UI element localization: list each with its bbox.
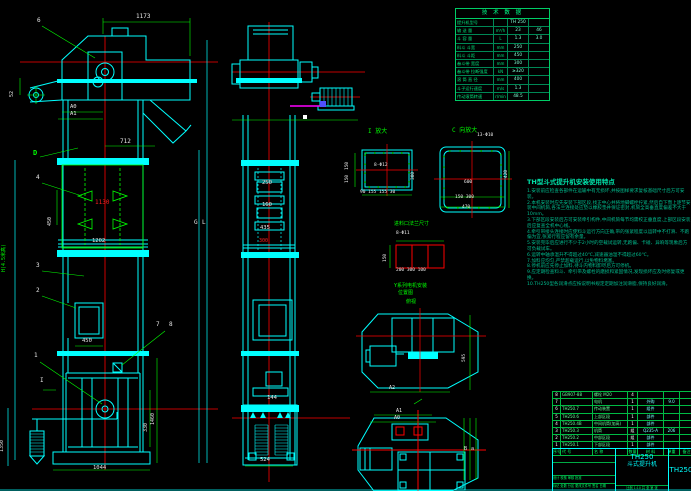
bom-item-code: TH250.7 <box>560 406 592 412</box>
tech-row-unit: mm <box>493 44 507 51</box>
tech-row-label: 斗子运行速度 <box>456 85 493 92</box>
bom-item-code: TH250.3 <box>560 428 592 434</box>
detail-I-title: I 放大 <box>368 129 387 135</box>
bom-row: 4 TH250.4B 中间机筒(加高) 1 部件 <box>553 420 691 427</box>
bom-item-name: 上部区段 <box>592 414 627 420</box>
tech-row-unit: L <box>493 35 507 42</box>
tech-row-label: 畚斗带 拉断强度 <box>456 68 493 75</box>
detail-C-title: C 向放大 <box>452 128 477 134</box>
inlet-flange-holes: 8-Φ11 <box>396 232 410 237</box>
bom-row: 5 TH250.6 上部区段 1 部件 <box>553 413 691 420</box>
bom-item-qty: 1 <box>627 421 637 427</box>
highlight-blue-block <box>320 101 326 107</box>
detail-I-dim-150b: 150 <box>346 175 351 183</box>
technical-data-row: 料斗 斗距 mm 450 <box>456 51 549 59</box>
bom-rows: 8 GB907-88 螺栓 M20 4 7 电机 1 外购 9.0 6 TH25… <box>553 392 691 449</box>
bom-item-material <box>637 392 663 398</box>
bom-item-weight: 206 <box>663 428 679 434</box>
bom-item-code <box>560 399 592 405</box>
head-side-top-box <box>248 26 293 60</box>
detail-I-holes: 8-Φ12 <box>374 164 388 169</box>
bom-item-qty: 组 <box>627 428 637 434</box>
drawing-model: TH250 <box>631 453 654 461</box>
bom-item-name: 中间机筒(加高) <box>592 421 627 427</box>
boot-platform <box>253 372 288 396</box>
technical-data-row: 提升机型号 TH 250 <box>456 19 549 26</box>
plan2-dim-A1: A1 <box>396 409 402 414</box>
plan-view-title: 俯视 <box>406 300 416 305</box>
tech-row-label: 输 送 量 <box>456 27 493 34</box>
selection-grip <box>303 115 307 119</box>
dim-arm-height: 52 <box>10 91 15 97</box>
tech-row-unit <box>493 19 507 26</box>
tech-row-label: 提升机型号 <box>456 19 493 26</box>
discharge-chute <box>143 100 191 143</box>
title-block-scale-row: 比例 1:10 共 张 第 张 <box>616 485 668 491</box>
bom-item-weight: 9.0 <box>663 399 679 405</box>
note-line: 2.本机安装时应先安装下部区段,找正中心并将地脚螺栓拧紧,然后自下而上逐节安装中… <box>527 201 691 218</box>
tech-row-unit: mm <box>493 60 507 67</box>
bom-item-qty: 组 <box>627 435 637 441</box>
tech-row-value-1: 23 <box>507 27 528 34</box>
notes-title: TH型斗式提升机安装使用特点 <box>527 176 691 186</box>
bom-item-material: 组件 <box>637 406 663 412</box>
technical-data-row: 畚斗带 拉断强度 kN ≥320 <box>456 67 549 75</box>
tech-row-value-1: TH 250 <box>507 19 528 26</box>
tech-row-unit: mm <box>493 52 507 59</box>
tech-row-value-2 <box>528 85 549 92</box>
flange-band-2 <box>57 250 149 257</box>
technical-data-row: 斗 容 量 L 1.3 3.0 <box>456 34 549 42</box>
dim-boot-1460: 1460 <box>151 413 156 425</box>
dim-boot-330: 330 <box>144 423 149 432</box>
tech-row-unit: kN <box>493 68 507 75</box>
dim-side-250: 250 <box>262 181 272 187</box>
plan2-dim-B: B <box>464 447 467 452</box>
tech-row-value-2 <box>528 44 549 51</box>
flange-band-1 <box>57 158 149 165</box>
backstop-arm <box>30 80 62 102</box>
title-block-signatures: 设计 校核 审核 批准 标记 处数 分区 更改文件号 签名 日期 <box>553 449 616 491</box>
part-label-7: 7 <box>156 322 160 328</box>
plan-view-lower <box>352 399 486 491</box>
bom-item-material: 部件 <box>637 414 663 420</box>
bom-row: 2 TH250.2 中部区段 组 部件 <box>553 434 691 441</box>
bom-item-note <box>679 414 691 420</box>
dim-mid-1130: 1130 <box>95 200 109 206</box>
inspection-door <box>113 363 122 372</box>
note-line: 10.TH250型各润滑点应按说明书规定定期加注润滑脂,保持良好润滑。 <box>527 282 691 288</box>
dim-inlet-450: 450 <box>82 339 92 345</box>
tech-row-value-1: 1.3 <box>507 35 528 42</box>
bom-item-no: 6 <box>553 406 560 412</box>
dim-label-L: L <box>202 220 206 226</box>
middle-view-cyan-linework <box>232 26 354 465</box>
technical-data-row: 输 送 量 m³/h 23 46 <box>456 26 549 34</box>
technical-data-title: 技 术 数 据 <box>456 9 549 19</box>
title-block-roles: 设计 校核 审核 批准 <box>553 476 615 484</box>
tech-row-value-2 <box>528 19 549 26</box>
mid-section <box>62 165 143 248</box>
drawing-product-name: 斗式提升机 <box>627 461 657 469</box>
part-label-1: 1 <box>34 353 38 359</box>
tech-row-label: 斗 容 量 <box>456 35 493 42</box>
part-label-8: 8 <box>169 322 173 328</box>
tech-row-value-1: 450 <box>507 52 528 59</box>
inlet-flange-dims-bottom: 200 300 100 <box>396 269 426 274</box>
dim-bucket-pitch: 450 <box>48 217 53 226</box>
dim-base-1044: 1044 <box>93 466 106 472</box>
tech-row-value-2 <box>528 76 549 83</box>
bom-item-name: 机筒 <box>592 428 627 434</box>
dim-A0: A0 <box>70 105 77 111</box>
note-line: 1.安装前应检查各部件在运输中有无损坏,并按图样要求复核基础尺寸后方可安装。 <box>527 189 691 201</box>
technical-data-row: 传动滚筒转速 r/min 48.5 <box>456 92 549 100</box>
motor-layout-title-1: Y系列电机安装 <box>394 284 427 289</box>
dim-top-width: 1173 <box>136 14 150 20</box>
tech-row-label: 传动滚筒转速 <box>456 93 493 100</box>
tech-row-value-2 <box>528 52 549 59</box>
tech-row-unit: r/min <box>493 93 507 100</box>
dim-side-300: 300 <box>259 239 268 244</box>
bom-item-name: 电机 <box>592 399 627 405</box>
head-side-body <box>232 60 298 88</box>
note-line: 5.安装完毕后应进行不少于2小时的空载试运转,无跑偏、卡碰、异响等现象后方可负载… <box>527 241 691 253</box>
dim-head-offset: 712 <box>120 139 131 145</box>
dim-side-144: 144 <box>267 396 277 402</box>
tech-row-value-2 <box>528 68 549 75</box>
plan2-dim-A0: A0 <box>394 416 400 421</box>
tech-row-value-2 <box>528 60 549 67</box>
bom-row: 7 电机 1 外购 9.0 <box>553 398 691 405</box>
bom-item-note <box>679 399 691 405</box>
technical-data-row: 畚斗带 宽度 mm 300 <box>456 59 549 67</box>
bom-item-no: 5 <box>553 414 560 420</box>
bom-item-note <box>679 435 691 441</box>
bom-item-material: 部件 <box>637 435 663 441</box>
tech-row-value-1: 48.5 <box>507 93 528 100</box>
detail-C-holes: 13-Φ10 <box>477 134 493 139</box>
inlet-box <box>75 303 103 338</box>
dim-side-160: 160 <box>262 203 272 209</box>
tech-row-unit: mm <box>493 76 507 83</box>
part-label-2: 2 <box>36 288 40 294</box>
part-label-4: 4 <box>36 175 40 181</box>
installation-notes: TH型斗式提升机安装使用特点 1.安装前应检查各部件在运输中有无损坏,并按图样要… <box>527 176 691 389</box>
tech-row-value-2: 46 <box>528 27 549 34</box>
part-label-3: 3 <box>36 263 40 269</box>
bom-item-note <box>679 428 691 434</box>
tech-row-value-2: 3.0 <box>528 35 549 42</box>
tech-row-label: 料斗 斗距 <box>456 52 493 59</box>
bom-item-no: 2 <box>553 435 560 441</box>
detail-C-dim-470: 470 <box>462 206 470 211</box>
bom-item-material: 外购 <box>637 399 663 405</box>
detail-I-dim-300: 300 <box>412 172 417 180</box>
title-block: 设计 校核 审核 批准 标记 处数 分区 更改文件号 签名 日期 TH250 斗… <box>552 448 691 491</box>
boot-frame <box>66 373 140 452</box>
bom-row: 6 TH250.7 传动装置 1 组件 <box>553 405 691 412</box>
bom-item-qty: 4 <box>627 392 637 398</box>
bom-row: 3 TH250.3 机筒 组 Q235-A 206 <box>553 427 691 434</box>
technical-data-table: 技 术 数 据 提升机型号 TH 250 输 送 量 m³/h 23 46 斗 … <box>455 8 550 101</box>
dim-label-G: G <box>194 220 198 226</box>
casing-walls <box>63 100 143 452</box>
tech-row-value-2 <box>528 93 549 100</box>
bom-item-weight <box>663 414 679 420</box>
tech-row-label: 滚 筒 直 径 <box>456 76 493 83</box>
bom-item-weight <box>663 392 679 398</box>
note-line: 3.下部区段安装后方可安装牵引构件,中间机筒每节均需校正垂直度,上部区段安装后应… <box>527 218 691 230</box>
motor-layout-title-2: 位置图 <box>398 291 413 296</box>
bom-item-code: TH250.4B <box>560 421 592 427</box>
detail-C-dim-600: 600 <box>464 181 472 186</box>
plan2-dim-a: a <box>471 447 474 452</box>
bom-item-name: 螺栓 M20 <box>592 392 627 398</box>
bom-item-qty: 1 <box>627 406 637 412</box>
bom-item-no: 3 <box>553 428 560 434</box>
bom-item-note <box>679 406 691 412</box>
bom-item-no: 8 <box>553 392 560 398</box>
dim-overall-height: H(4.5米高) <box>2 244 7 272</box>
bom-item-material: Q235-A <box>637 428 663 434</box>
detail-I-dims-bottom: 90 155 155 30 <box>360 191 395 196</box>
flange-band-3 <box>57 351 149 356</box>
detail-C-dim-420: 420 <box>505 170 510 178</box>
bom-item-qty: 1 <box>627 399 637 405</box>
tech-row-value-1: 400 <box>507 76 528 83</box>
bom-item-note <box>679 421 691 427</box>
drawing-number: TH250 <box>669 449 691 491</box>
note-line: 4.牵引带接头连接时应使料斗运行方向正确,带的张紧程度以运转中不打滑、不跑偏为宜… <box>527 230 691 242</box>
detail-I-dim-150a: 150 <box>346 162 351 170</box>
inlet-side-box <box>253 300 292 340</box>
detail-I-flange <box>355 144 418 196</box>
dim-A1: A1 <box>70 112 77 118</box>
bom-item-note <box>679 392 691 398</box>
title-block-sig-row: 标记 处数 分区 更改文件号 签名 日期 <box>553 484 615 491</box>
dim-mid-1202: 1202 <box>92 239 105 245</box>
detail-inlet-flange <box>390 241 444 268</box>
tech-row-value-1: 250 <box>507 44 528 51</box>
technical-data-rows: 提升机型号 TH 250 输 送 量 m³/h 23 46 斗 容 量 L 1.… <box>456 19 549 100</box>
inlet-flange-dim-150: 150 <box>384 254 389 262</box>
inlet-flange-title: 进料口法兰尺寸 <box>394 222 429 227</box>
detail-C-flange <box>434 141 512 218</box>
tech-row-value-1: 1.3 <box>507 85 528 92</box>
bom-item-weight <box>663 435 679 441</box>
tech-row-unit: m/s <box>493 85 507 92</box>
technical-data-row: 滚 筒 直 径 mm 400 <box>456 75 549 83</box>
takeup-lever <box>32 412 117 431</box>
tech-row-value-1: 300 <box>507 60 528 67</box>
plan1-dim-595: 595 <box>463 354 468 362</box>
view-label-D: D <box>33 150 37 157</box>
takeup-springs <box>255 425 288 455</box>
bill-of-materials: 8 GB907-88 螺栓 M20 4 7 电机 1 外购 9.0 6 TH25… <box>552 391 691 456</box>
dim-side-435: 435 <box>260 226 270 232</box>
tech-row-value-1: ≥320 <box>507 68 528 75</box>
section-label-I: I <box>40 378 44 384</box>
part-label-6: 6 <box>37 18 41 24</box>
cad-drawing-canvas: 1173 6 52 A0 A1 712 D 4 450 1130 1202 3 … <box>0 0 691 491</box>
notes-lines: 1.安装前应检查各部件在运输中有无损坏,并按图样要求复核基础尺寸后方可安装。2.… <box>527 189 691 288</box>
base-plate <box>53 452 150 464</box>
bom-item-no: 4 <box>553 421 560 427</box>
technical-data-row: 斗子运行速度 m/s 1.3 <box>456 84 549 92</box>
bom-item-name: 传动装置 <box>592 406 627 412</box>
technical-data-row: 料斗 斗宽 mm 250 <box>456 43 549 51</box>
head-hood-outline <box>62 36 190 100</box>
note-line: 9.应定期检查料斗、牵引带及螺栓的磨损和紧固情况,发现损坏应及时修复或更换。 <box>527 270 691 282</box>
bom-item-code: TH250.6 <box>560 414 592 420</box>
bom-item-code: GB907-88 <box>560 392 592 398</box>
plan-view-upper <box>356 308 486 392</box>
plan1-dim-A2: A2 <box>389 386 395 391</box>
dim-side-524: 524 <box>260 458 270 464</box>
detail-C-dims-150-300: 150 300 <box>455 196 474 201</box>
tech-row-unit: m³/h <box>493 27 507 34</box>
bom-item-material: 部件 <box>637 421 663 427</box>
tech-row-label: 料斗 斗宽 <box>456 44 493 51</box>
bom-row: 8 GB907-88 螺栓 M20 4 <box>553 392 691 398</box>
dim-left-1350: 1350 <box>0 440 5 452</box>
bom-item-no: 7 <box>553 399 560 405</box>
title-block-center: TH250 斗式提升机 比例 1:10 共 张 第 张 <box>616 449 669 491</box>
head-platform-band <box>57 79 197 83</box>
bom-item-code: TH250.2 <box>560 435 592 441</box>
bom-item-name: 中部区段 <box>592 435 627 441</box>
bom-item-weight <box>663 421 679 427</box>
tech-row-label: 畚斗带 宽度 <box>456 60 493 67</box>
bom-item-weight <box>663 406 679 412</box>
bom-item-qty: 1 <box>627 414 637 420</box>
